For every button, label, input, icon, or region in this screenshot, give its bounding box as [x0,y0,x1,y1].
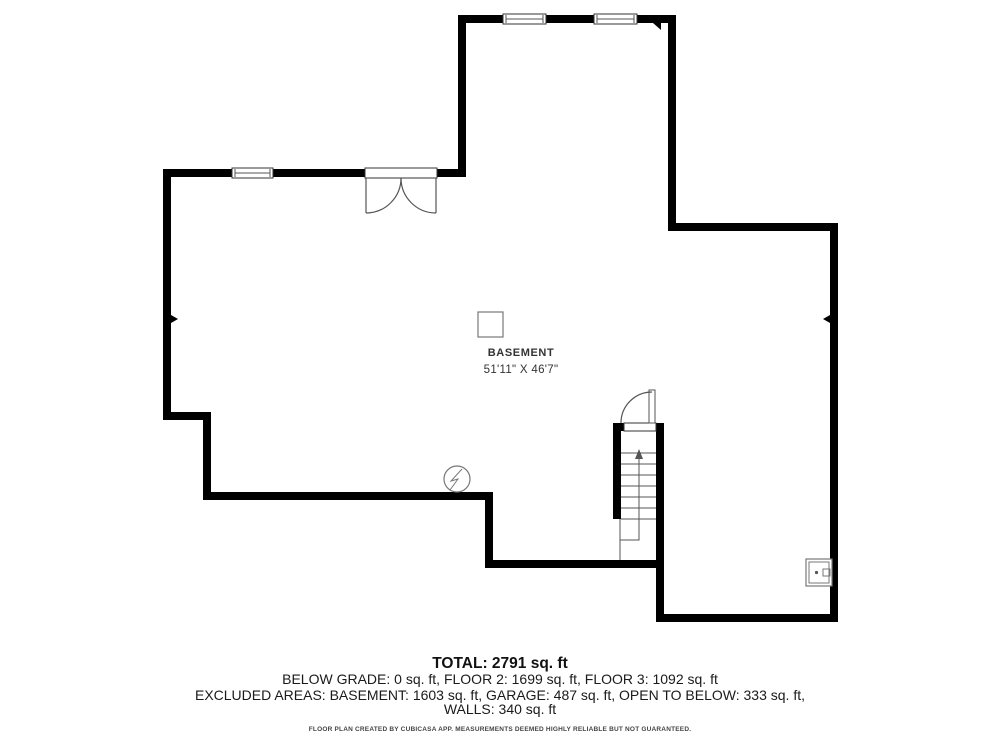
window-top-left [503,14,546,24]
stair-door [621,390,656,431]
disclaimer: FLOOR PLAN CREATED BY CUBICASA APP. MEAS… [0,726,1000,733]
summary-walls: WALLS: 340 sq. ft [0,701,1000,717]
corner-marker-top-right [653,23,661,30]
wall-marker-left [171,315,178,323]
room-dimensions: 51'11" X 46'7" [371,364,671,376]
stairwell-wall-left [613,423,625,519]
structural-column-icon [478,312,503,337]
stairwell-wall-right [656,423,664,560]
floor-plan-page: BASEMENT 51'11" X 46'7" TOTAL: 2791 sq. … [0,0,1000,750]
double-door [365,168,437,213]
wall-marker-right [823,315,830,323]
room-label: BASEMENT [371,347,671,359]
window-left [232,168,273,178]
window-top-right [594,14,637,24]
staircase [620,449,656,560]
electrical-panel-icon [806,559,832,586]
sump-pump-icon [444,466,470,492]
stair-up-arrow-icon [635,449,643,459]
summary-floors: BELOW GRADE: 0 sq. ft, FLOOR 2: 1699 sq.… [0,671,1000,687]
